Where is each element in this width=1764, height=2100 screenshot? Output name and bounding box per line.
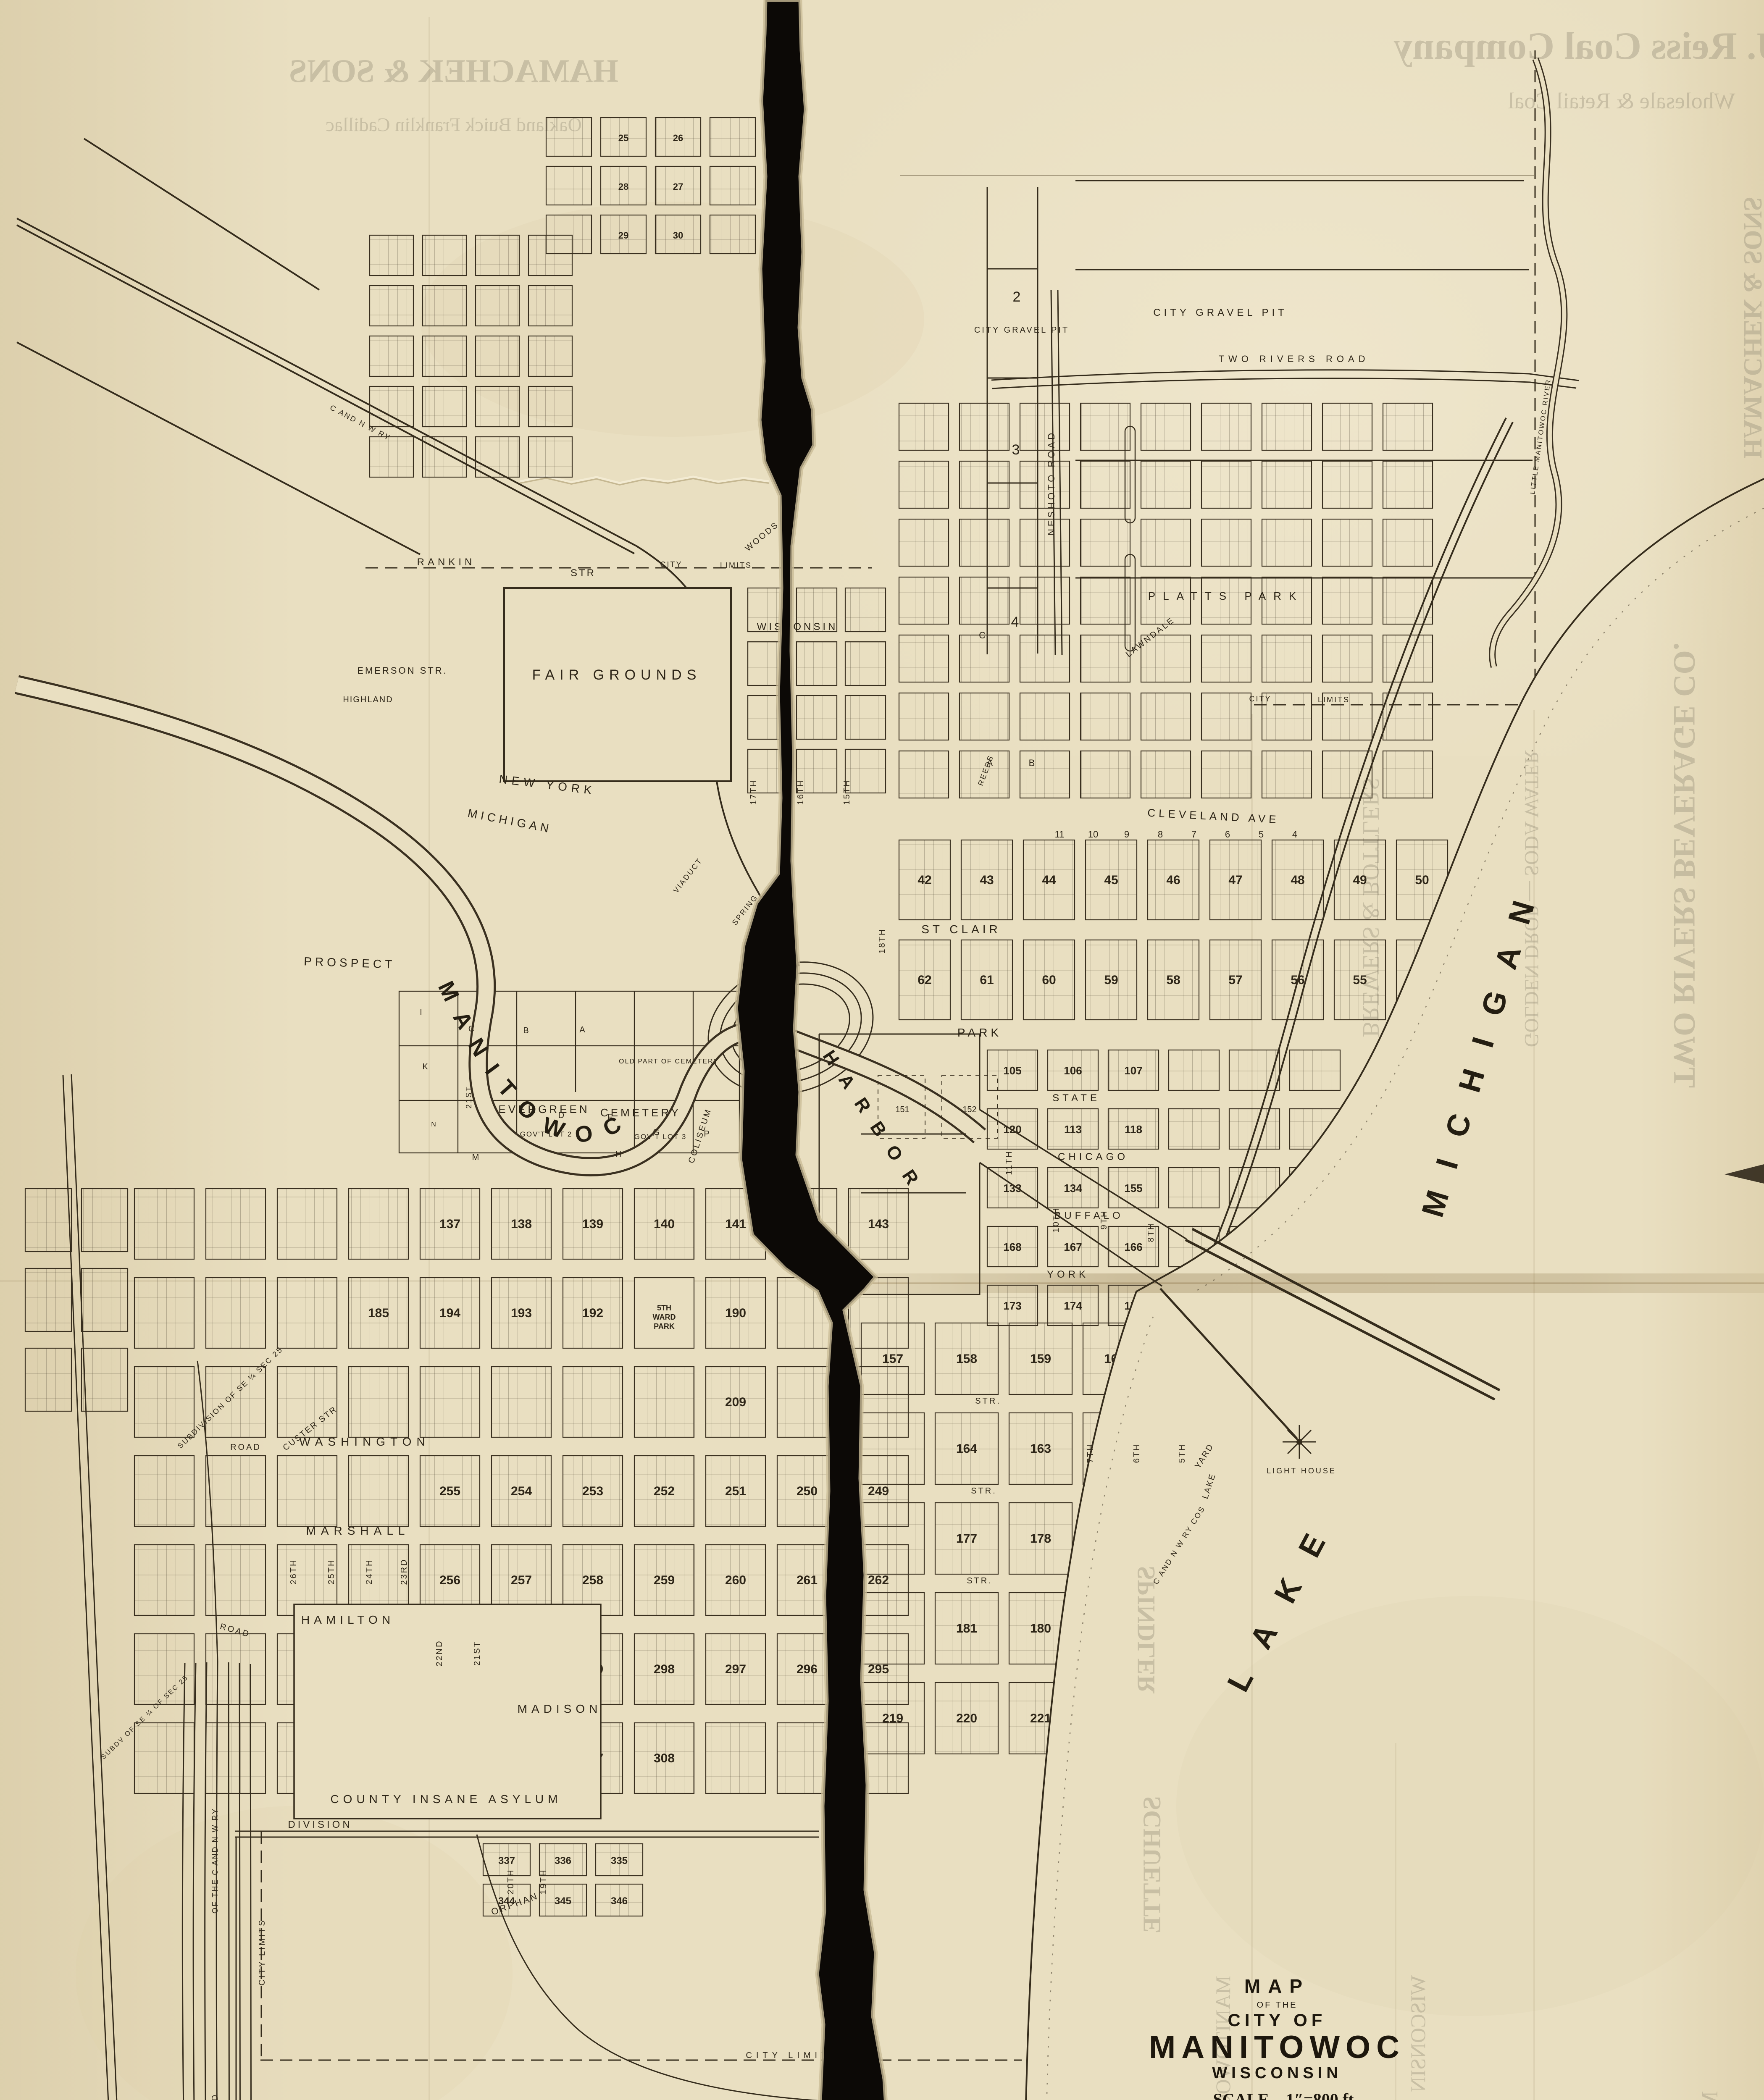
city-block bbox=[1201, 519, 1251, 566]
map-label: 2 bbox=[1013, 289, 1021, 305]
city-block bbox=[25, 1348, 71, 1411]
city-block bbox=[81, 1348, 128, 1411]
map-label: 10TH bbox=[1052, 1207, 1061, 1233]
city-block bbox=[476, 235, 519, 276]
city-block bbox=[1322, 403, 1372, 450]
map-label: LIMITS bbox=[1318, 696, 1350, 704]
block-number: 143 bbox=[868, 1217, 889, 1231]
block-number: 194 bbox=[439, 1306, 460, 1320]
city-block bbox=[277, 1189, 337, 1259]
map-label: CHICAGO bbox=[1058, 1151, 1128, 1163]
city-block bbox=[370, 386, 413, 427]
block-number: 44 bbox=[1042, 873, 1056, 887]
block-number: 259 bbox=[654, 1573, 675, 1587]
city-block bbox=[1322, 577, 1372, 624]
city-block bbox=[370, 336, 413, 376]
map-label: G bbox=[653, 1128, 660, 1137]
block-number: 164 bbox=[956, 1442, 977, 1456]
block-number: 250 bbox=[797, 1484, 818, 1498]
block-number: 253 bbox=[582, 1484, 603, 1498]
city-block bbox=[546, 118, 592, 156]
city-block bbox=[206, 1189, 266, 1259]
map-label: LIGHT HOUSE bbox=[1267, 1467, 1336, 1475]
city-block bbox=[960, 693, 1009, 740]
map-label: 9 bbox=[1124, 829, 1129, 840]
city-block bbox=[1322, 519, 1372, 566]
map-label: CITY bbox=[1249, 695, 1271, 703]
map-label: 22ND bbox=[435, 1640, 444, 1666]
block-number: 185 bbox=[368, 1306, 389, 1320]
block-number: 140 bbox=[654, 1217, 675, 1231]
block-number: 61 bbox=[980, 973, 994, 987]
city-block bbox=[423, 437, 466, 477]
city-block bbox=[206, 1634, 266, 1704]
block-number: 335 bbox=[611, 1855, 628, 1866]
map-label: C bbox=[979, 630, 986, 640]
block-number: 177 bbox=[956, 1532, 977, 1546]
block-number: 118 bbox=[1125, 1123, 1142, 1136]
city-block bbox=[1383, 693, 1433, 740]
block-number: 107 bbox=[1124, 1064, 1142, 1077]
map-label: 6 bbox=[1225, 829, 1230, 840]
city-block bbox=[349, 1367, 408, 1437]
block-number: 159 bbox=[1030, 1352, 1051, 1366]
city-block bbox=[370, 437, 413, 477]
city-block bbox=[1020, 693, 1070, 740]
city-block bbox=[1169, 1050, 1219, 1090]
city-block bbox=[277, 1278, 337, 1348]
city-block bbox=[1322, 635, 1372, 682]
city-block bbox=[1080, 577, 1130, 624]
block-number: 178 bbox=[1030, 1532, 1051, 1546]
block-number: 260 bbox=[725, 1573, 746, 1587]
block-number: 62 bbox=[917, 973, 931, 987]
city-block bbox=[899, 751, 949, 798]
city-block bbox=[370, 235, 413, 276]
map-label: 151 bbox=[895, 1105, 909, 1114]
city-block bbox=[81, 1268, 128, 1331]
block-number: 139 bbox=[582, 1217, 603, 1231]
title-map: MAP bbox=[1244, 1975, 1310, 1997]
map-label: DIVISION bbox=[288, 1819, 352, 1830]
ghost-ad: HAMACHEK & SONS bbox=[1738, 197, 1764, 458]
map-label: 24TH bbox=[365, 1559, 374, 1585]
city-block bbox=[349, 1456, 408, 1526]
city-block bbox=[960, 403, 1009, 450]
block-number: 190 bbox=[725, 1306, 746, 1320]
map-label: 23RD bbox=[400, 1558, 409, 1585]
map-label: PLATTS PARK bbox=[1148, 590, 1304, 602]
city-block bbox=[1141, 693, 1191, 740]
block-number: 27 bbox=[673, 181, 683, 192]
block-number: 166 bbox=[1124, 1241, 1142, 1253]
block-number: 48 bbox=[1291, 873, 1304, 887]
city-block bbox=[710, 215, 755, 254]
city-block bbox=[134, 1367, 194, 1437]
city-block bbox=[1262, 635, 1312, 682]
block-number: 158 bbox=[956, 1352, 977, 1366]
city-block bbox=[1080, 751, 1130, 798]
title-city-name: MANITOWOC bbox=[1149, 2029, 1405, 2065]
city-block bbox=[1229, 1050, 1280, 1090]
block-number: 255 bbox=[439, 1484, 460, 1498]
map-canvas: The J. Reiss Coal CompanyWholesale & Ret… bbox=[0, 0, 1764, 2100]
city-block bbox=[1383, 519, 1433, 566]
city-block bbox=[710, 118, 755, 156]
city-block bbox=[899, 635, 949, 682]
city-block bbox=[1262, 403, 1312, 450]
map-label: STR. bbox=[975, 1396, 1001, 1406]
block-number: 25 bbox=[618, 133, 628, 143]
city-block bbox=[960, 519, 1009, 566]
map-label: PARK bbox=[957, 1026, 1002, 1039]
city-block bbox=[528, 286, 572, 326]
city-block bbox=[134, 1723, 194, 1793]
map-label: 5TH bbox=[1178, 1444, 1187, 1463]
city-block bbox=[423, 286, 466, 326]
city-block bbox=[960, 577, 1009, 624]
block-number: 168 bbox=[1003, 1241, 1021, 1253]
map-label: 6TH bbox=[1132, 1444, 1141, 1463]
ghost-ad: SCHUETTE bbox=[1138, 1796, 1166, 1934]
block-number: 251 bbox=[725, 1484, 746, 1498]
city-block bbox=[134, 1278, 194, 1348]
city-block bbox=[1020, 751, 1070, 798]
block-number: 193 bbox=[511, 1306, 532, 1320]
city-block bbox=[134, 1545, 194, 1615]
map-label: YORK bbox=[1047, 1269, 1089, 1280]
city-block bbox=[528, 437, 572, 477]
city-block bbox=[476, 286, 519, 326]
city-block bbox=[370, 286, 413, 326]
block-number: 45 bbox=[1104, 873, 1118, 887]
city-block bbox=[710, 166, 755, 205]
block-number: 58 bbox=[1166, 973, 1180, 987]
block-number: 43 bbox=[980, 873, 994, 887]
map-label: P bbox=[704, 1129, 709, 1139]
map-label: 19TH bbox=[539, 1869, 548, 1895]
map-label: 26TH bbox=[289, 1559, 298, 1585]
lighthouse-symbol bbox=[1283, 1425, 1316, 1459]
city-block bbox=[960, 461, 1009, 508]
block-number: 141 bbox=[725, 1217, 746, 1231]
city-block bbox=[845, 642, 886, 685]
block-number: 181 bbox=[956, 1622, 977, 1635]
block-number: 137 bbox=[439, 1217, 460, 1231]
block-number: 220 bbox=[956, 1711, 977, 1725]
city-block bbox=[1141, 461, 1191, 508]
city-block bbox=[1169, 1109, 1219, 1149]
city-block bbox=[1383, 403, 1433, 450]
city-block bbox=[861, 1593, 924, 1664]
city-block bbox=[861, 1413, 924, 1484]
block-number: 254 bbox=[511, 1484, 532, 1498]
map-label: EMERSON STR. bbox=[357, 665, 447, 676]
city-block bbox=[476, 437, 519, 477]
map-label: 11TH bbox=[1004, 1150, 1014, 1175]
city-block bbox=[206, 1723, 266, 1793]
block-number: 30 bbox=[673, 230, 683, 241]
map-label: MARSHALL bbox=[306, 1524, 410, 1537]
map-label: COUNTY INSANE ASYLUM bbox=[330, 1793, 562, 1806]
block-number: 308 bbox=[654, 1751, 675, 1765]
ghost-ad: TWO RIVERS BEVERAGE CO. bbox=[1667, 643, 1701, 1088]
title-of-the: OF THE bbox=[1257, 2000, 1298, 2010]
block-number: 155 bbox=[1124, 1182, 1142, 1194]
map-label: A bbox=[987, 758, 993, 768]
map-label: ROAD bbox=[230, 1443, 261, 1452]
map-label: GOV'T LOT 3 bbox=[634, 1133, 687, 1141]
city-block bbox=[1141, 403, 1191, 450]
map-label: BUFFALO bbox=[1054, 1210, 1123, 1221]
map-label: 20TH bbox=[506, 1869, 515, 1895]
block-number: 219 bbox=[882, 1711, 903, 1725]
block-number: 296 bbox=[797, 1662, 818, 1676]
city-block bbox=[960, 635, 1009, 682]
city-block bbox=[492, 1367, 551, 1437]
map-label: ST CLAIR bbox=[921, 923, 1001, 936]
ghost-ad: SPINDLER bbox=[1132, 1566, 1160, 1693]
block-number: 345 bbox=[555, 1895, 571, 1907]
map-label: OF THE C AND N W RY bbox=[211, 1808, 219, 1914]
map-label: STR bbox=[570, 567, 596, 579]
map-label: A bbox=[579, 1025, 585, 1034]
block-number: 55 bbox=[1353, 973, 1367, 987]
block-number: 298 bbox=[654, 1662, 675, 1676]
city-block bbox=[1322, 461, 1372, 508]
block-number: 49 bbox=[1353, 873, 1367, 887]
city-block bbox=[1383, 461, 1433, 508]
block-number: 50 bbox=[1415, 873, 1429, 887]
map-label: H bbox=[615, 1150, 621, 1159]
map-label: 7TH bbox=[1086, 1444, 1095, 1463]
map-label: 21ST bbox=[473, 1641, 482, 1666]
ghost-ad: Oakland Buick Franklin Cadillac bbox=[326, 114, 581, 135]
city-block bbox=[797, 696, 837, 739]
block-number: 337 bbox=[498, 1855, 515, 1866]
map-label: RANKIN bbox=[417, 556, 476, 568]
map-label: LIMITS bbox=[720, 561, 752, 570]
map-label: 8 bbox=[1158, 829, 1163, 840]
map-label: K bbox=[422, 1062, 428, 1071]
map-label: STATE bbox=[1052, 1092, 1100, 1104]
city-block bbox=[1141, 751, 1191, 798]
city-block bbox=[546, 215, 592, 254]
map-label: WASHINGTON bbox=[299, 1435, 430, 1448]
city-block bbox=[899, 577, 949, 624]
map-label: CITY GRAVEL PIT bbox=[974, 325, 1069, 335]
block-number: 174 bbox=[1064, 1299, 1082, 1312]
title-state: WISCONSIN bbox=[1212, 2064, 1342, 2082]
city-block bbox=[797, 642, 837, 685]
block-number: 257 bbox=[511, 1573, 532, 1587]
map-label: 9TH bbox=[1099, 1210, 1109, 1230]
city-block bbox=[1201, 693, 1251, 740]
map-label: 5 bbox=[1259, 829, 1264, 840]
map-label: CALUMET YARD bbox=[210, 2093, 220, 2100]
city-block bbox=[1080, 693, 1130, 740]
block-number: 167 bbox=[1064, 1241, 1082, 1253]
city-block bbox=[1201, 403, 1251, 450]
block-number: 28 bbox=[618, 181, 628, 192]
block-number: 192 bbox=[582, 1306, 603, 1320]
block-number: 163 bbox=[1030, 1442, 1051, 1456]
map-label: I bbox=[420, 1008, 422, 1017]
city-block bbox=[476, 386, 519, 427]
city-block bbox=[1141, 519, 1191, 566]
block-number: 138 bbox=[511, 1217, 532, 1231]
city-block bbox=[81, 1189, 128, 1252]
map-label: NESHOTO ROAD bbox=[1046, 430, 1057, 535]
map-label: N bbox=[431, 1121, 436, 1128]
city-block bbox=[528, 386, 572, 427]
city-block bbox=[349, 1189, 408, 1259]
city-block bbox=[1201, 461, 1251, 508]
map-label: CITY LIMITS bbox=[258, 1919, 267, 1985]
map-label: 21ST bbox=[465, 1085, 473, 1108]
city-block bbox=[420, 1367, 480, 1437]
city-block bbox=[1080, 403, 1130, 450]
city-block bbox=[1080, 635, 1130, 682]
city-block bbox=[1080, 461, 1130, 508]
map-label: 16TH bbox=[796, 780, 805, 805]
block-number: 249 bbox=[868, 1484, 889, 1498]
city-block bbox=[528, 336, 572, 376]
city-block bbox=[134, 1189, 194, 1259]
block-number: 106 bbox=[1064, 1064, 1082, 1077]
block-number: 157 bbox=[882, 1352, 903, 1366]
city-block bbox=[476, 336, 519, 376]
city-block bbox=[899, 693, 949, 740]
city-block bbox=[1229, 1109, 1280, 1149]
city-block bbox=[899, 519, 949, 566]
city-block bbox=[845, 696, 886, 739]
city-block bbox=[563, 1367, 623, 1437]
city-block bbox=[899, 403, 949, 450]
map-label: 3 bbox=[1012, 442, 1020, 458]
ghost-ad: The J. Reiss Coal Company bbox=[1393, 24, 1764, 67]
city-block bbox=[1201, 635, 1251, 682]
city-block bbox=[134, 1456, 194, 1526]
map-label: HAMILTON bbox=[301, 1613, 394, 1626]
scale-note: SCALE—1″=800 ft. bbox=[1213, 2090, 1358, 2100]
city-block bbox=[1383, 751, 1433, 798]
map-label: 7 bbox=[1191, 829, 1196, 840]
map-label: B bbox=[523, 1026, 528, 1035]
map-label: CITY GRAVEL PIT bbox=[1153, 307, 1288, 318]
fair-grounds-area bbox=[504, 588, 731, 781]
block-number: 42 bbox=[917, 873, 931, 887]
block-number: 105 bbox=[1003, 1064, 1021, 1077]
city-block bbox=[206, 1278, 266, 1348]
title-city-of: CITY OF bbox=[1228, 2010, 1327, 2030]
city-block bbox=[1262, 751, 1312, 798]
city-block bbox=[1262, 461, 1312, 508]
block-number: 221 bbox=[1030, 1711, 1051, 1725]
lighthouse-dot bbox=[1296, 1439, 1302, 1445]
city-block bbox=[25, 1268, 71, 1331]
ghost-ad: WISCONSIN bbox=[1406, 1975, 1430, 2092]
block-number: 59 bbox=[1104, 973, 1118, 987]
block-number: 57 bbox=[1228, 973, 1242, 987]
city-block bbox=[1290, 1050, 1340, 1090]
block-number: 252 bbox=[654, 1484, 675, 1498]
city-block bbox=[845, 588, 886, 632]
city-block bbox=[1201, 751, 1251, 798]
city-block bbox=[423, 386, 466, 427]
block-number: 134 bbox=[1064, 1182, 1082, 1194]
block-number: 46 bbox=[1166, 873, 1180, 887]
map-label: FAIR GROUNDS bbox=[532, 667, 702, 683]
block-number: 180 bbox=[1030, 1622, 1051, 1635]
city-block bbox=[1080, 519, 1130, 566]
city-block bbox=[423, 336, 466, 376]
map-label: MADISON bbox=[518, 1702, 602, 1715]
map-label: CITY bbox=[660, 560, 682, 569]
city-block bbox=[634, 1367, 694, 1437]
block-number: 60 bbox=[1042, 973, 1056, 987]
block-number: 262 bbox=[868, 1573, 889, 1587]
city-block bbox=[423, 235, 466, 276]
block-number: 29 bbox=[618, 230, 628, 241]
map-label: 18TH bbox=[878, 928, 887, 954]
map-label: 17TH bbox=[749, 780, 758, 805]
city-block bbox=[546, 166, 592, 205]
block-number: 173 bbox=[1003, 1299, 1021, 1312]
map-label: 152 bbox=[962, 1105, 976, 1114]
map-label: 11 bbox=[1055, 829, 1065, 840]
map-label: WISCONSIN bbox=[757, 621, 838, 633]
map-label: HIGHLAND bbox=[343, 695, 393, 704]
city-block bbox=[899, 461, 949, 508]
block-number: 346 bbox=[611, 1895, 628, 1907]
ghost-ad: HAMACHEK & SONS bbox=[289, 52, 618, 89]
map-label: M bbox=[472, 1153, 479, 1162]
city-block bbox=[277, 1456, 337, 1526]
map-label: 8TH bbox=[1146, 1223, 1156, 1242]
map-label: 4 bbox=[1011, 614, 1019, 630]
map-label: STR. bbox=[971, 1486, 997, 1496]
block-number: 256 bbox=[439, 1573, 460, 1587]
city-block bbox=[25, 1189, 71, 1252]
city-block bbox=[1322, 751, 1372, 798]
city-block bbox=[1262, 519, 1312, 566]
block-number: 47 bbox=[1228, 873, 1242, 887]
block-number: 26 bbox=[673, 133, 683, 143]
scanned-map-page: { "paper": {"base":"#e9dfc1","ink":"#352… bbox=[0, 0, 1764, 2100]
city-block bbox=[1020, 519, 1070, 566]
block-number: 113 bbox=[1064, 1123, 1082, 1136]
block-number: 261 bbox=[797, 1573, 818, 1587]
city-block bbox=[206, 1456, 266, 1526]
city-block bbox=[706, 1723, 765, 1793]
map-label: STR. bbox=[967, 1576, 993, 1585]
block-number: 209 bbox=[725, 1395, 746, 1409]
city-block bbox=[1020, 403, 1070, 450]
block-number: 336 bbox=[555, 1855, 571, 1866]
block-number: 133 bbox=[1003, 1182, 1021, 1194]
map-label: OLD PART OF CEMETERY bbox=[619, 1058, 719, 1065]
city-block bbox=[1169, 1168, 1219, 1208]
block-number: 297 bbox=[725, 1662, 746, 1676]
city-block bbox=[861, 1503, 924, 1574]
map-label: 10 bbox=[1088, 829, 1098, 840]
map-label: 15TH bbox=[842, 780, 852, 805]
map-label: B bbox=[1029, 758, 1035, 768]
city-block bbox=[1020, 461, 1070, 508]
ghost-ad: MANITOWOC SEED CO. bbox=[1697, 2091, 1723, 2100]
block-number: 258 bbox=[582, 1573, 603, 1587]
